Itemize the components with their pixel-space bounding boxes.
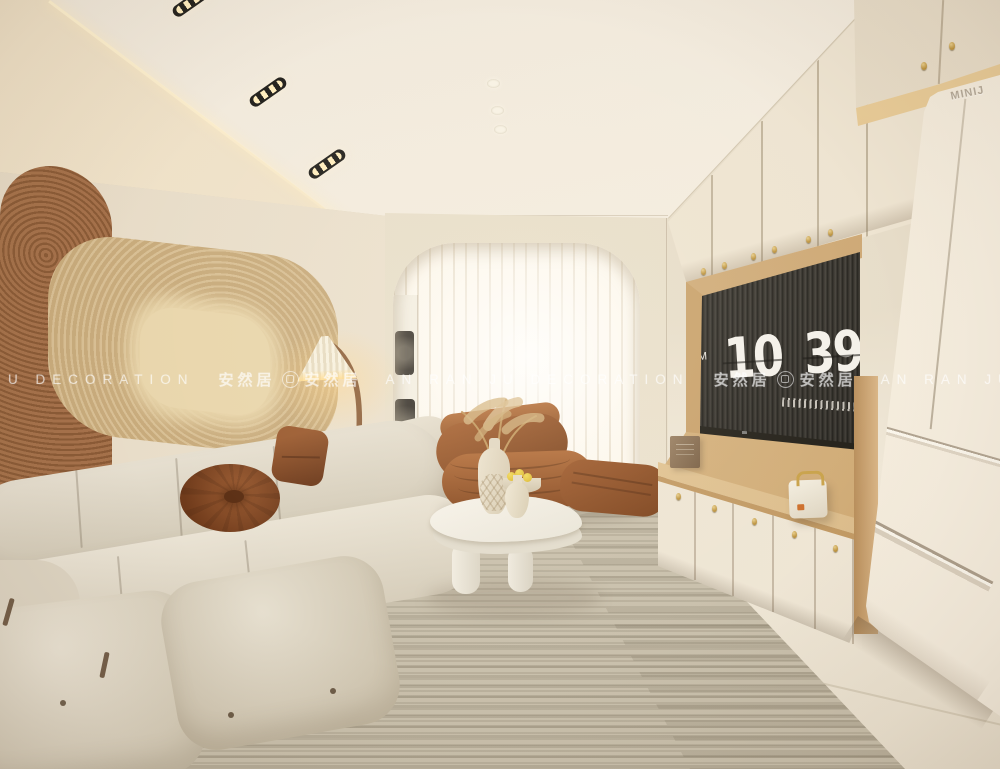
gold-knob	[833, 545, 838, 552]
anranju-logo-icon	[777, 371, 794, 388]
gold-knob	[676, 493, 681, 500]
living-room-render: AM 10 39 M	[0, 0, 1000, 769]
recessed-downlight	[494, 125, 507, 134]
tv-logo	[742, 431, 747, 434]
gold-knob	[751, 253, 756, 260]
gold-knob	[772, 246, 777, 253]
fridge-drawer-seam	[878, 425, 1000, 469]
watermark-brand: 安然居 安然居	[714, 369, 857, 390]
decor-book-box	[670, 436, 700, 468]
watermark-brand-cn: 安然居	[219, 369, 276, 390]
radio-dial	[797, 504, 804, 510]
sofa-button-tuft	[228, 712, 234, 718]
watermark-text: U DECORATION	[8, 372, 195, 387]
throw-blanket	[558, 457, 670, 518]
sofa-button-tuft	[330, 688, 336, 694]
gold-knob	[792, 531, 797, 538]
yellow-fruit	[523, 473, 532, 482]
watermark: U DECORATION 安然居 安然居 AN RAN JU DECORATIO…	[0, 365, 1000, 393]
sofa-button-tuft	[60, 700, 66, 706]
watermark-text: AN RAN JU DECORATION	[386, 372, 690, 387]
gold-knob	[701, 268, 706, 275]
cabinet-seam	[938, 0, 944, 84]
watermark-brand: 安然居 安然居	[219, 369, 362, 390]
gold-knob	[921, 62, 927, 70]
recessed-downlight	[487, 79, 500, 88]
watermark-brand-cn: 安然居	[800, 369, 857, 390]
recessed-downlight	[491, 106, 504, 115]
watermark-brand-cn: 安然居	[714, 369, 771, 390]
retro-radio-speaker	[788, 479, 827, 518]
gold-knob	[949, 42, 955, 50]
brown-round-pillow	[180, 464, 280, 532]
watermark-brand-cn: 安然居	[305, 369, 362, 390]
gold-knob	[712, 505, 717, 512]
brown-square-pillow	[270, 424, 330, 487]
fridge-drawer-seam	[865, 518, 994, 594]
gold-knob	[722, 262, 727, 269]
radio-handle	[796, 470, 825, 486]
art-center-panel	[140, 304, 270, 419]
wall-corner-line	[666, 218, 667, 498]
watermark-text: AN RAN JU DEC	[881, 372, 1000, 387]
gold-knob	[752, 518, 757, 525]
gold-knob	[828, 229, 833, 236]
anranju-logo-icon	[282, 371, 299, 388]
gold-knob	[806, 236, 811, 243]
cabinet-seam	[817, 60, 819, 252]
